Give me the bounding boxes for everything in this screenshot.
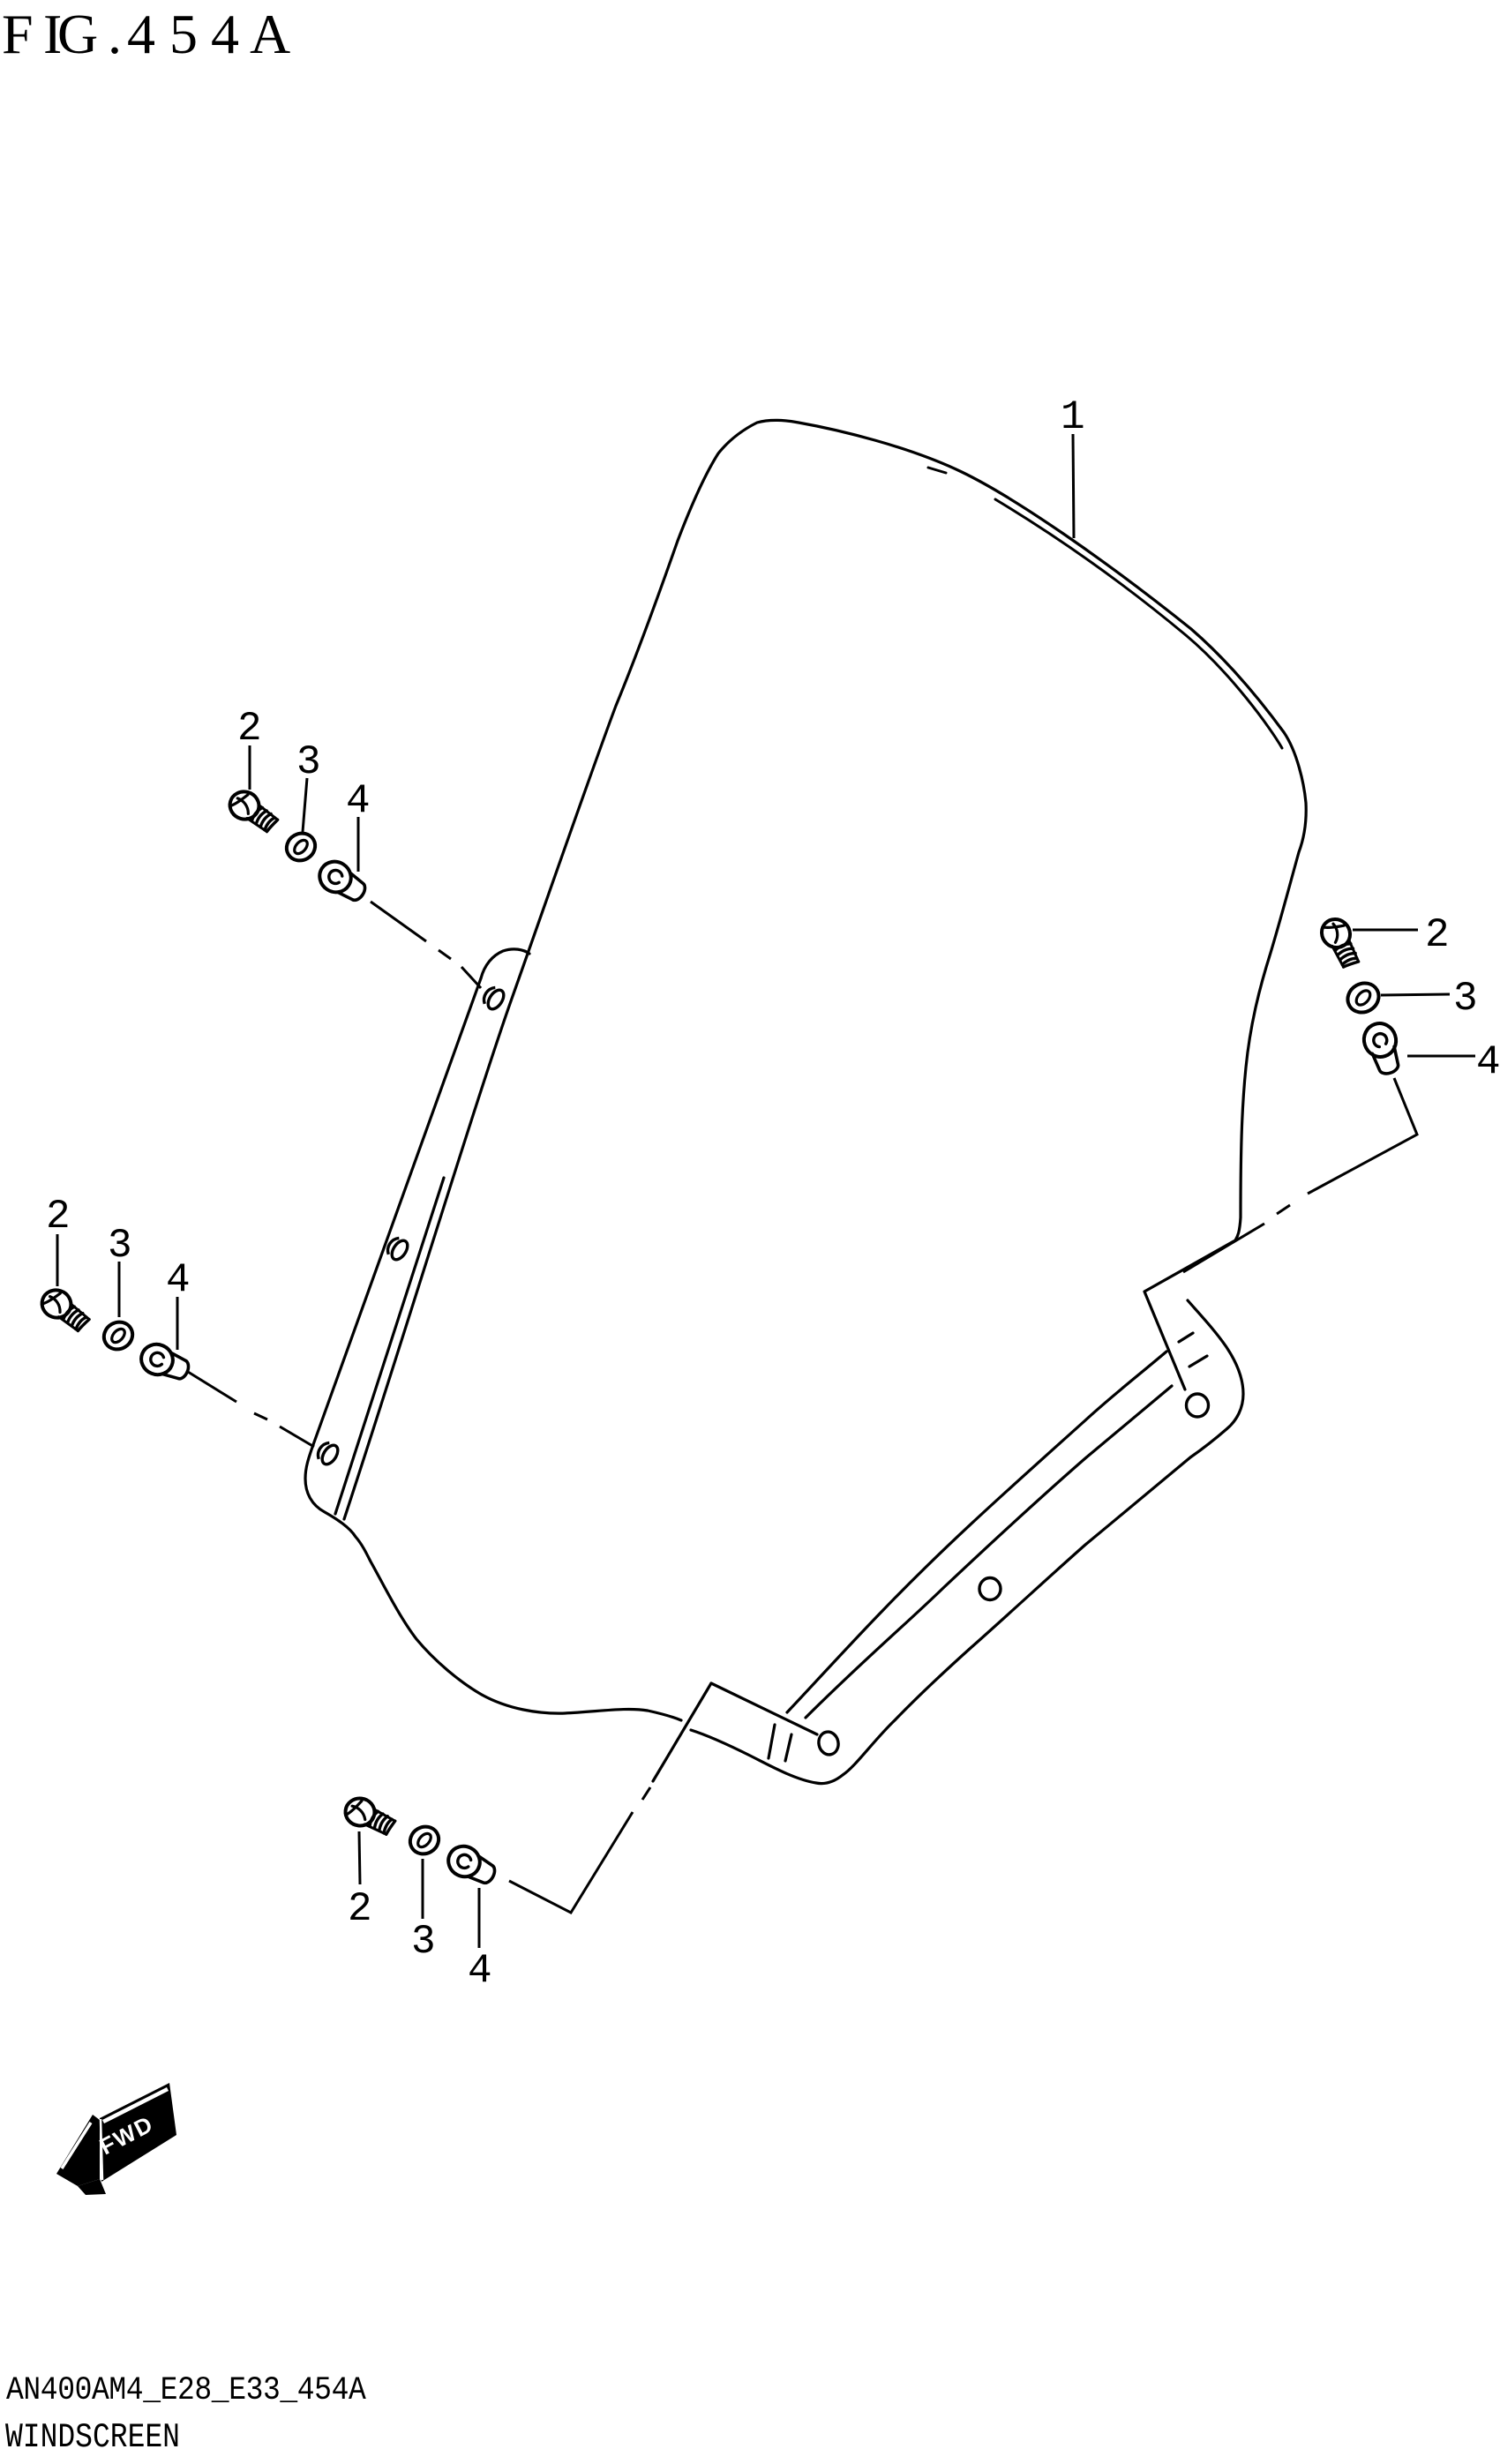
svg-text:1: 1 xyxy=(1061,394,1085,440)
svg-text:3: 3 xyxy=(1453,976,1478,1022)
svg-text:4: 4 xyxy=(1476,1039,1500,1085)
svg-text:4: 4 xyxy=(468,1948,492,1994)
svg-text:FIG.454A: FIG.454A xyxy=(2,3,290,65)
svg-text:2: 2 xyxy=(46,1194,71,1239)
svg-text:4: 4 xyxy=(166,1257,191,1303)
svg-text:3: 3 xyxy=(296,739,321,785)
svg-text:WINDSCREEN: WINDSCREEN xyxy=(5,2418,180,2457)
svg-text:AN400AM4_E28_E33_454A: AN400AM4_E28_E33_454A xyxy=(6,2371,367,2408)
svg-text:3: 3 xyxy=(411,1919,436,1965)
svg-text:2: 2 xyxy=(348,1886,372,1932)
svg-text:2: 2 xyxy=(237,706,262,752)
svg-text:2: 2 xyxy=(1425,912,1450,958)
